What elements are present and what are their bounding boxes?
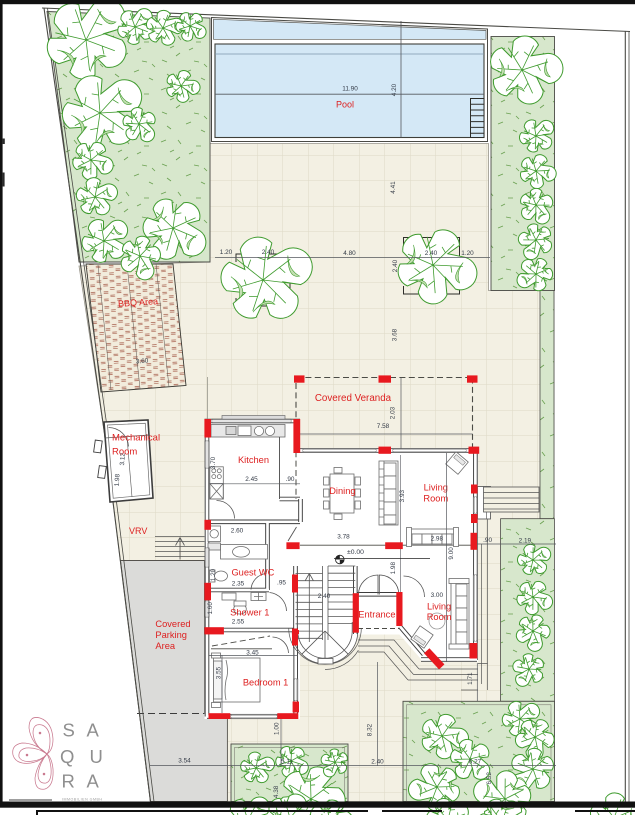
- svg-text:Bedroom 1: Bedroom 1: [243, 677, 288, 687]
- svg-text:1.20: 1.20: [220, 249, 233, 256]
- svg-text:2.40: 2.40: [371, 759, 384, 766]
- svg-text:R: R: [62, 771, 75, 792]
- svg-text:3.45: 3.45: [246, 650, 259, 657]
- svg-text:Covered Veranda: Covered Veranda: [315, 393, 392, 404]
- svg-text:5.11: 5.11: [281, 759, 293, 766]
- svg-text:Room: Room: [427, 612, 452, 622]
- svg-text:2.40: 2.40: [262, 249, 275, 256]
- svg-text:7.58: 7.58: [377, 423, 390, 430]
- svg-text:2.40: 2.40: [318, 593, 331, 600]
- svg-text:4.41: 4.41: [390, 181, 397, 194]
- svg-text:Living: Living: [424, 482, 448, 492]
- svg-text:2.55: 2.55: [232, 619, 245, 626]
- svg-text:Parking: Parking: [155, 630, 187, 640]
- svg-text:2.60: 2.60: [231, 527, 244, 534]
- svg-text:1.98: 1.98: [114, 473, 122, 486]
- svg-text:Q: Q: [60, 746, 74, 767]
- svg-text:Shower 1: Shower 1: [230, 608, 269, 618]
- svg-text:2.35: 2.35: [232, 581, 245, 588]
- svg-text:U: U: [90, 746, 103, 767]
- svg-text:A: A: [87, 771, 100, 792]
- svg-text:2.40: 2.40: [425, 250, 438, 257]
- svg-text:Mechanical: Mechanical: [112, 433, 160, 444]
- svg-text:1.20: 1.20: [210, 568, 217, 581]
- svg-text:Entrance: Entrance: [358, 610, 395, 620]
- svg-text:Kitchen: Kitchen: [238, 455, 269, 465]
- svg-text:Area: Area: [155, 641, 175, 651]
- svg-text:1.71: 1.71: [467, 672, 474, 685]
- svg-text:6.27: 6.27: [469, 759, 482, 766]
- svg-text:.90: .90: [286, 476, 295, 483]
- svg-text:4.20: 4.20: [391, 83, 398, 96]
- svg-text:Room: Room: [423, 493, 448, 503]
- svg-text:2.40: 2.40: [392, 259, 399, 272]
- svg-text:1.60: 1.60: [207, 602, 214, 615]
- svg-text:.90: .90: [483, 537, 492, 544]
- svg-text:VRV: VRV: [129, 526, 147, 536]
- svg-text:6.52: 6.52: [486, 772, 493, 785]
- svg-text:IMMOBILIEN GMBH: IMMOBILIEN GMBH: [62, 798, 102, 802]
- svg-text:S: S: [63, 720, 75, 741]
- svg-text:Dining: Dining: [329, 486, 355, 496]
- svg-text:3.68: 3.68: [392, 328, 399, 341]
- svg-text:1.00: 1.00: [273, 722, 280, 735]
- svg-text:3.60: 3.60: [136, 357, 149, 365]
- svg-text:3.55: 3.55: [215, 666, 222, 679]
- svg-text:3.78: 3.78: [337, 534, 350, 541]
- svg-text:±0.00: ±0.00: [347, 549, 364, 556]
- svg-text:3.54: 3.54: [178, 758, 191, 765]
- svg-text:8.32: 8.32: [367, 723, 374, 736]
- svg-text:A: A: [87, 720, 100, 741]
- svg-text:3.00: 3.00: [431, 592, 444, 599]
- svg-text:Living: Living: [427, 601, 451, 611]
- svg-text:4.80: 4.80: [343, 250, 356, 257]
- svg-text:1.20: 1.20: [461, 250, 474, 257]
- svg-text:2.45: 2.45: [245, 476, 258, 483]
- svg-text:3.70: 3.70: [210, 456, 217, 469]
- svg-text:2.98: 2.98: [431, 536, 444, 543]
- svg-text:2.19: 2.19: [519, 538, 532, 545]
- svg-text:9.00: 9.00: [448, 547, 455, 560]
- svg-text:4.38: 4.38: [273, 785, 280, 798]
- svg-text:1.98: 1.98: [390, 562, 397, 575]
- svg-text:3.12: 3.12: [119, 452, 127, 465]
- svg-text:Guest WC: Guest WC: [231, 567, 274, 577]
- svg-text:3.93: 3.93: [399, 489, 406, 502]
- svg-text:Pool: Pool: [336, 100, 354, 110]
- svg-text:.95: .95: [277, 580, 286, 587]
- svg-text:Covered: Covered: [155, 619, 190, 629]
- svg-text:11.90: 11.90: [342, 86, 358, 93]
- svg-text:2.03: 2.03: [390, 406, 397, 419]
